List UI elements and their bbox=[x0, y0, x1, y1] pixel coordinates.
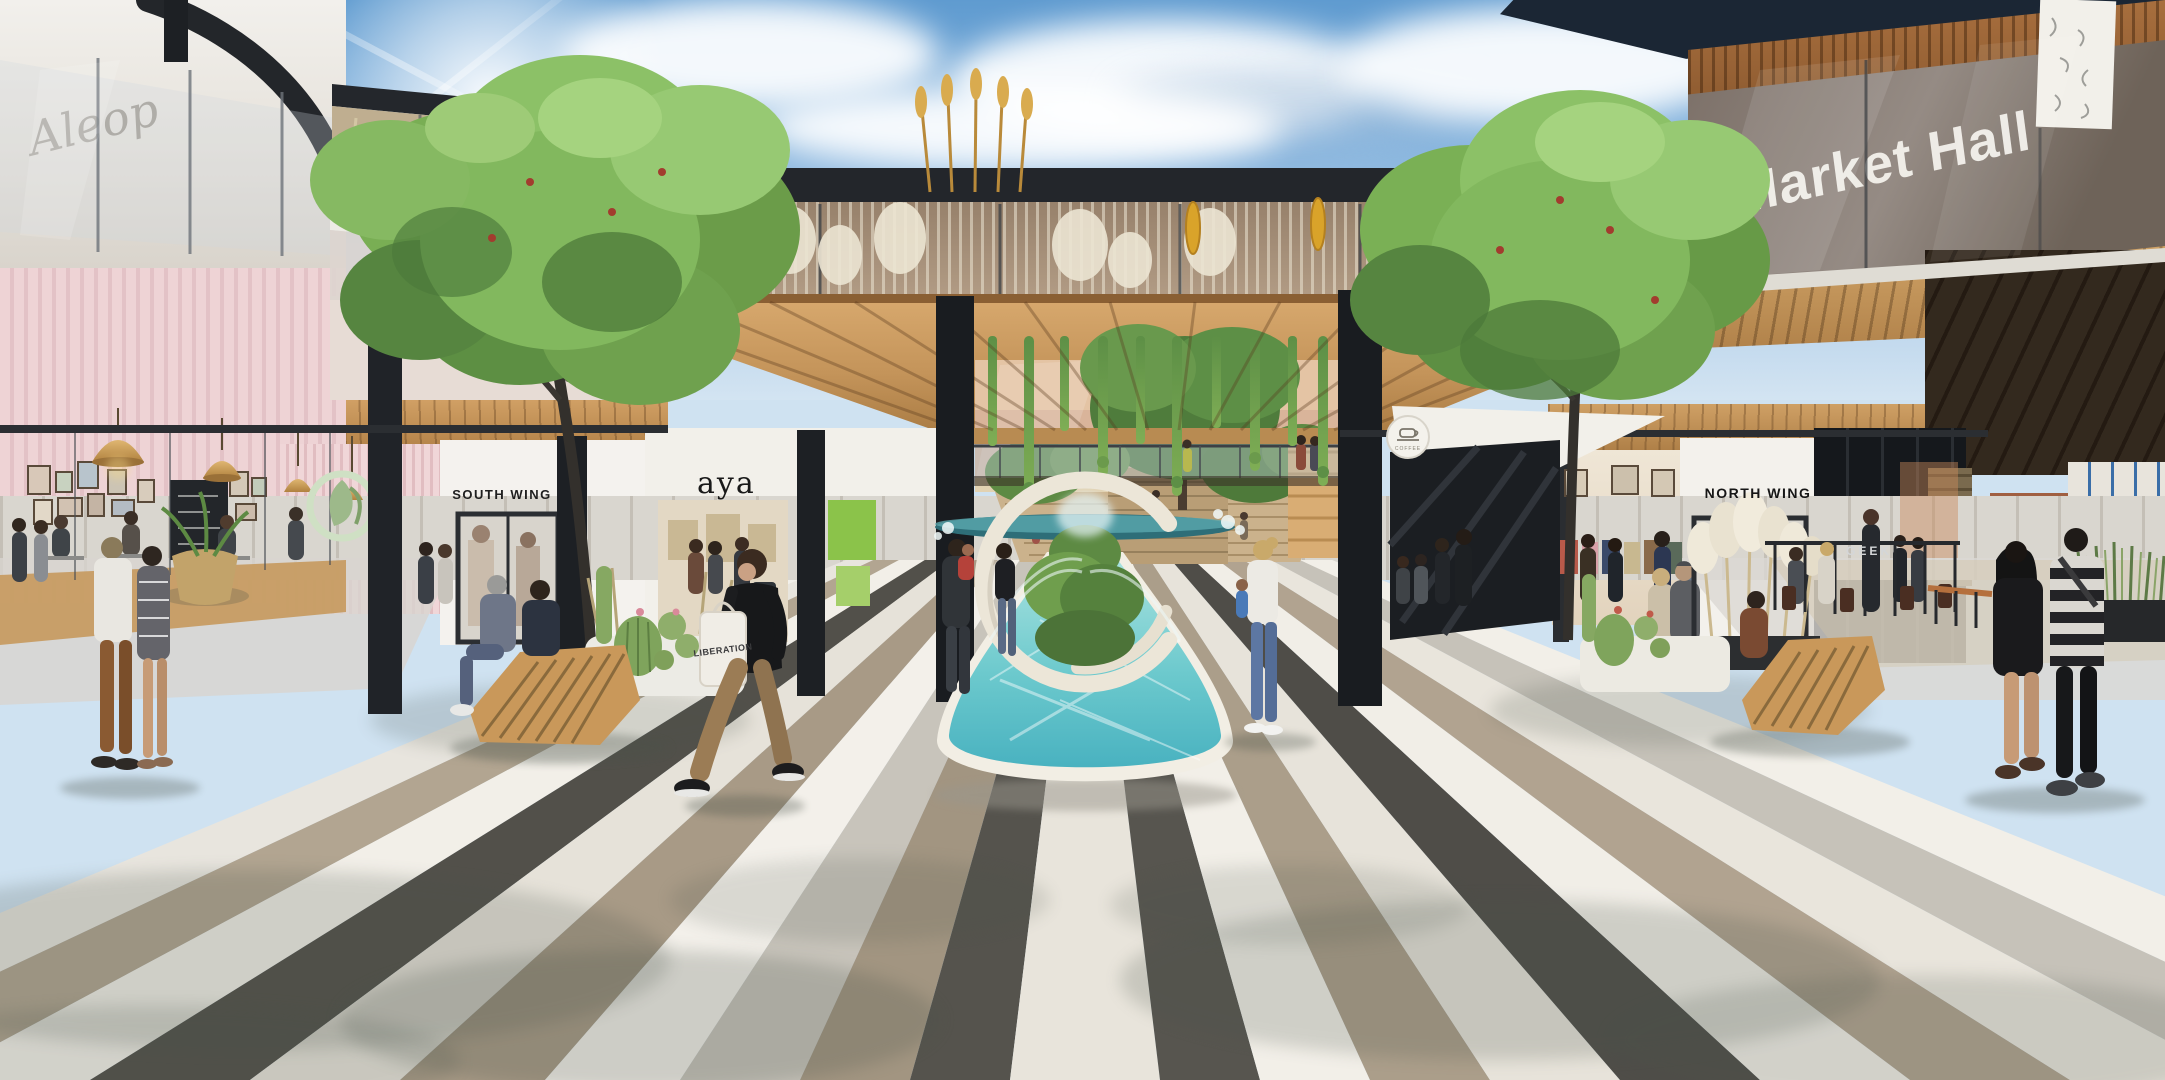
scene-overlay: COFFEE bbox=[0, 0, 2165, 1080]
golden-foxtails bbox=[922, 92, 1026, 192]
geek-store-sign: GEEK bbox=[1846, 544, 1922, 558]
coffee-sign-text: COFFEE bbox=[1395, 446, 1421, 452]
mall-atrium-rendering: COFFEE bbox=[0, 0, 2165, 1080]
green-display-panel bbox=[828, 500, 876, 560]
coffee-shop-sign: COFFEE bbox=[1387, 416, 1429, 458]
escalator-structure: COFFEE bbox=[1387, 406, 1665, 640]
leaf-logo-icon bbox=[310, 474, 374, 538]
south-wing-sign: SOUTH WING bbox=[441, 487, 563, 502]
north-wing-sign: NORTH WING bbox=[1692, 485, 1824, 501]
cafe-details bbox=[0, 408, 363, 645]
wicker-basket bbox=[172, 549, 238, 605]
waitress bbox=[1862, 524, 1880, 612]
aya-store-sign: aya bbox=[697, 466, 767, 501]
